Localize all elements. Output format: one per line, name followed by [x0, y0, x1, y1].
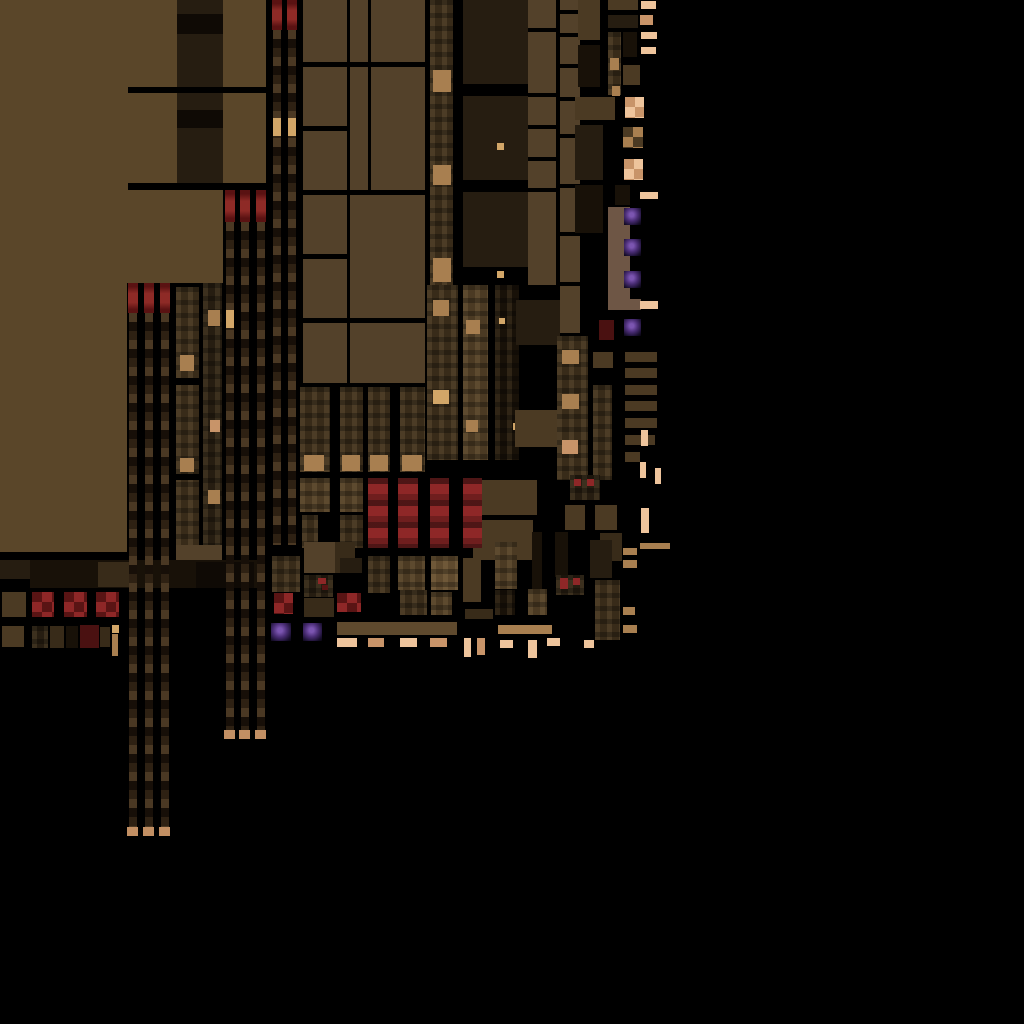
red-bar: [398, 478, 418, 548]
beam: [640, 543, 670, 549]
floor-line: [528, 157, 556, 161]
dark-cell: [575, 125, 603, 180]
peach-ore-tile: [625, 97, 644, 118]
beam-block: [608, 0, 638, 10]
ledge: [625, 401, 657, 411]
tile: [398, 556, 425, 590]
chain: [241, 222, 249, 730]
tile: [98, 562, 130, 587]
chain-anchor: [287, 0, 297, 30]
tan-fleck: [210, 420, 220, 432]
tan-fleck: [466, 420, 478, 432]
gold-dot: [497, 143, 504, 150]
purple-gem-tile: [303, 623, 322, 641]
eye-dot: [574, 479, 581, 486]
peach-dash: [337, 638, 357, 647]
tan-fleck: [433, 165, 451, 185]
peach-dash: [655, 468, 661, 484]
gold-dot: [499, 318, 505, 324]
support-foot: [342, 455, 360, 471]
chain: [145, 313, 153, 827]
chain-anchor: [225, 190, 235, 222]
tower-rung: [303, 254, 347, 259]
beam-block: [593, 352, 613, 368]
dark-cell: [623, 32, 637, 57]
floor-line: [560, 10, 580, 14]
tan-dash: [623, 625, 637, 633]
peach-dash: [528, 640, 537, 658]
eye-dot: [573, 578, 580, 585]
tan-fleck: [433, 70, 451, 92]
red-ore-tile: [337, 593, 361, 612]
tan-fleck: [562, 394, 579, 409]
gold-dot: [497, 271, 504, 278]
tower-rung: [303, 190, 347, 195]
tile: [66, 626, 78, 648]
stack-gap: [176, 378, 199, 385]
peach-dash: [477, 638, 485, 655]
red-bar: [430, 478, 449, 548]
peach-ore-tile: [623, 127, 643, 148]
tan-fleck: [562, 440, 578, 454]
floor-line: [560, 282, 580, 286]
ledge: [625, 385, 657, 395]
tile: [2, 626, 24, 647]
chain: [273, 30, 281, 545]
tile: [300, 478, 330, 512]
pillar: [595, 580, 620, 640]
tile: [340, 478, 363, 512]
tile: [100, 627, 110, 647]
beam-block: [578, 0, 600, 40]
pillar: [528, 0, 556, 285]
chain: [129, 313, 137, 827]
tan-fleck: [180, 355, 194, 371]
dark-cell: [463, 192, 528, 267]
dark-red-tile: [599, 320, 614, 340]
chain-link-gold: [288, 118, 296, 136]
tower-rung: [350, 62, 425, 67]
tile: [431, 556, 458, 590]
tower-rung: [350, 318, 425, 323]
dark-pillar: [532, 532, 542, 589]
tan-fleck: [180, 458, 194, 472]
peach-dash: [464, 638, 471, 657]
dark-pillar-band: [177, 110, 223, 128]
tan-fleck: [208, 310, 220, 326]
eye-dot: [322, 585, 328, 590]
chain-link-gold: [273, 118, 281, 136]
support-foot: [370, 455, 388, 471]
rope-pillar: [430, 0, 453, 285]
tile: [463, 558, 481, 602]
dark-pillar-band: [177, 14, 223, 34]
chain-tip: [255, 730, 266, 739]
dark-pillar: [555, 532, 568, 577]
tan-fleck: [612, 86, 620, 96]
red-ore-tile: [32, 592, 54, 617]
eye-dot: [318, 578, 326, 584]
dark-cell: [578, 45, 600, 87]
purple-gem-tile: [624, 271, 641, 288]
dark-cell: [590, 540, 612, 578]
beam-block: [623, 65, 640, 85]
red-bar: [463, 478, 482, 548]
peach-dash: [640, 301, 658, 309]
eye-dot: [560, 578, 568, 589]
chain: [257, 222, 265, 730]
peach-dash: [641, 32, 657, 39]
chain: [288, 30, 296, 545]
tower-rung: [350, 190, 425, 195]
peach-dash: [641, 1, 656, 9]
chain-anchor: [144, 283, 154, 313]
tower-rung: [303, 62, 347, 67]
peach-dash: [547, 638, 560, 646]
purple-gem-tile: [271, 623, 291, 641]
chain-anchor: [128, 283, 138, 313]
peach-dash: [400, 638, 417, 647]
beam: [465, 609, 493, 619]
tile: [400, 590, 427, 615]
purple-gem-tile: [624, 319, 641, 336]
tile: [528, 589, 547, 615]
purple-gem-tile: [624, 208, 641, 225]
dark-cell: [516, 300, 560, 345]
chain-anchor: [160, 283, 170, 313]
peach-dash: [641, 430, 648, 446]
chain-link-gold: [226, 310, 234, 328]
floor-line: [528, 93, 556, 97]
tile: [340, 558, 362, 573]
peach-dash: [640, 462, 646, 478]
red-bar: [368, 478, 388, 548]
beam-block: [575, 97, 615, 120]
dark-cell: [463, 0, 528, 84]
floor-line: [128, 87, 266, 93]
dark-cell: [575, 185, 603, 233]
tan-fleck: [433, 300, 449, 316]
tile: [50, 626, 64, 648]
tile: [2, 592, 26, 617]
beam-block: [515, 410, 560, 447]
tile: [565, 505, 585, 530]
tile: [304, 598, 334, 617]
tan-dash: [623, 548, 637, 555]
tower-seam: [368, 0, 371, 190]
peach-dash: [640, 15, 653, 25]
floor-line: [528, 125, 556, 129]
chain-tip: [159, 827, 170, 836]
purple-gem-tile: [624, 239, 641, 256]
tan-fleck: [466, 320, 480, 334]
tan-fleck: [433, 258, 451, 282]
peach-dash: [641, 47, 656, 54]
pillar: [463, 285, 488, 460]
chain-anchor: [272, 0, 282, 30]
tile: [595, 505, 617, 530]
peach-ore-tile: [624, 159, 643, 180]
crate-stack: [176, 287, 199, 545]
tower-rung: [303, 318, 347, 323]
tan-fleck: [610, 58, 619, 70]
peach-dash: [584, 640, 594, 648]
chain-tip: [239, 730, 250, 739]
red-ore-tile: [274, 593, 293, 614]
gold-dot: [112, 625, 119, 633]
beam: [337, 622, 457, 635]
rock-mass: [0, 283, 127, 552]
tile: [32, 626, 48, 648]
chain-tip: [127, 827, 138, 836]
ledge: [625, 352, 657, 362]
floor-line: [528, 28, 556, 32]
peach-dash: [641, 508, 649, 533]
support-foot: [304, 455, 324, 471]
eye-dot: [587, 479, 594, 486]
taupe-bracket-arm: [608, 299, 641, 310]
beam-block: [473, 480, 537, 515]
chain-anchor: [240, 190, 250, 222]
peach-dash: [430, 638, 447, 647]
red-ore-tile: [64, 592, 87, 617]
tower-rung: [303, 126, 347, 131]
tan-dash: [623, 607, 635, 615]
pillar: [593, 385, 612, 480]
rock-mass: [0, 183, 223, 283]
floor-line: [560, 64, 580, 68]
ledge: [625, 418, 657, 428]
chain: [161, 313, 169, 827]
dark-cell: [608, 15, 638, 28]
chain-tip: [143, 827, 154, 836]
dark-cell: [463, 96, 528, 180]
floor-line: [528, 188, 556, 192]
chain: [226, 222, 234, 730]
tile: [495, 542, 517, 589]
ledge: [625, 435, 655, 445]
dark-cell: [615, 185, 630, 205]
tan-fleck: [562, 350, 579, 364]
game-map-viewport[interactable]: [0, 0, 1024, 1024]
tile: [0, 560, 30, 579]
stack-gap: [176, 474, 199, 480]
tile: [612, 540, 622, 560]
tan-fleck: [208, 490, 220, 504]
tan-dash: [112, 634, 118, 656]
ledge: [625, 368, 657, 378]
red-ore-tile: [96, 592, 119, 617]
beam-block: [304, 542, 335, 573]
support-foot: [402, 455, 422, 471]
peach-dash: [640, 192, 658, 199]
peach-dash: [368, 638, 384, 647]
tan-fleck: [433, 390, 449, 404]
tile: [431, 592, 452, 615]
crate-stack: [272, 556, 300, 592]
tan-dash: [623, 560, 637, 568]
tile: [495, 590, 515, 615]
beam: [498, 625, 552, 634]
chain-anchor: [256, 190, 266, 222]
dark-red-tile: [80, 625, 99, 648]
chain-tip: [224, 730, 235, 739]
ledge: [625, 452, 640, 462]
tile: [368, 556, 390, 593]
peach-dash: [500, 640, 513, 648]
floor-line: [128, 183, 266, 190]
floor-line: [560, 33, 580, 37]
